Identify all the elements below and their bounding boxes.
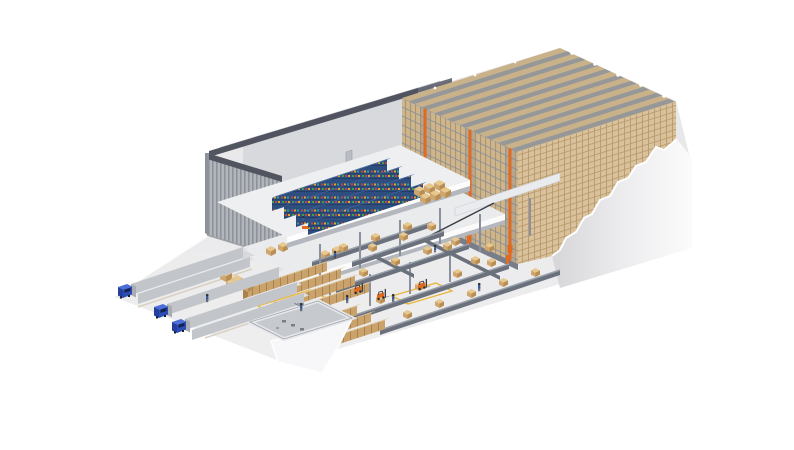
truck-cab xyxy=(118,284,132,299)
warehouse-illustration: 3D cutaway illustration of an automated … xyxy=(0,0,794,450)
crane-carriage xyxy=(508,245,513,253)
wall-corner-edge xyxy=(205,153,209,236)
warehouse-3d-illustration xyxy=(0,0,794,450)
